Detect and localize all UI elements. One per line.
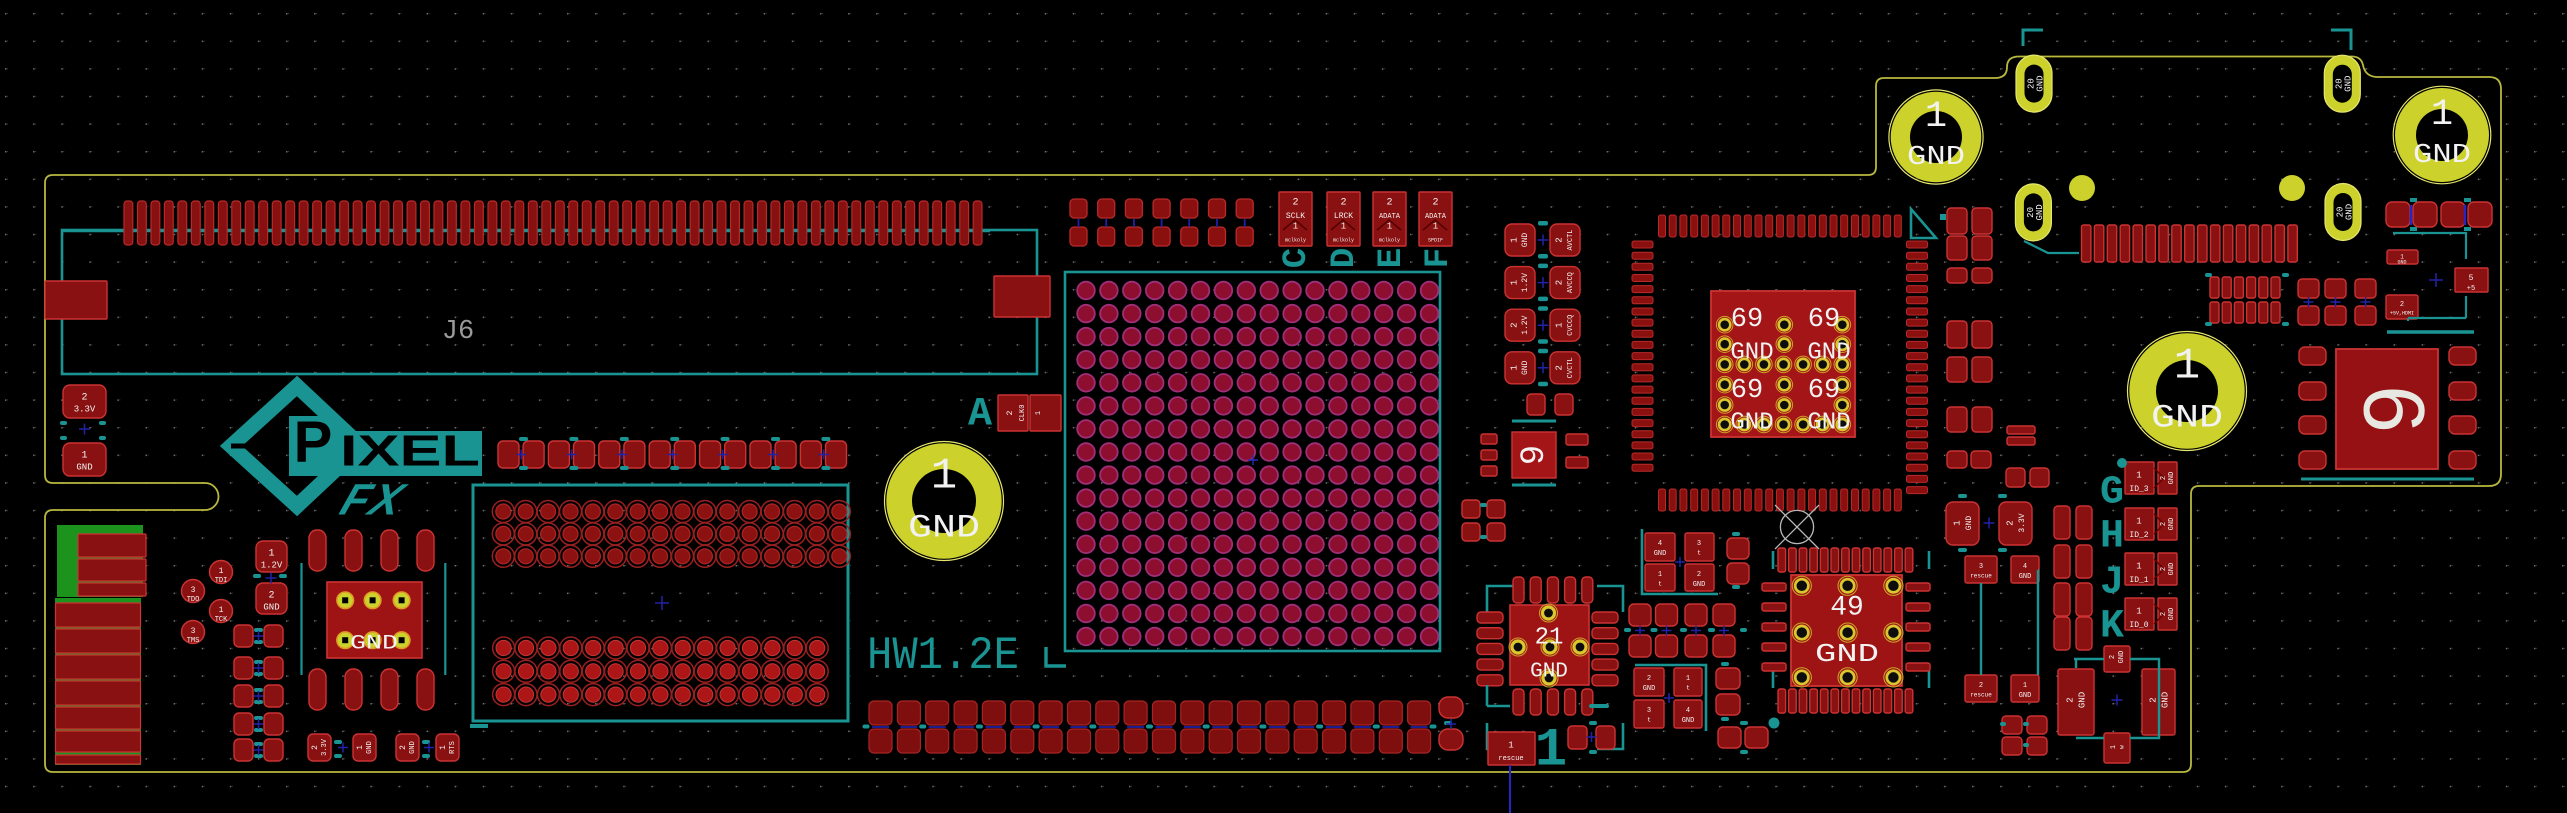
svg-text:1: 1 — [1554, 322, 1564, 327]
svg-text:GND: GND — [76, 462, 92, 472]
svg-text:2: 2 — [1697, 571, 1701, 579]
svg-text:GND: GND — [1643, 685, 1656, 693]
svg-text:J: J — [2100, 561, 2124, 606]
svg-text:1: 1 — [219, 606, 224, 615]
svg-text:6: 6 — [2345, 385, 2441, 433]
svg-text:GND: GND — [2019, 573, 2032, 581]
svg-text:2: 2 — [1292, 198, 1298, 209]
svg-text:GND: GND — [1521, 360, 1530, 375]
svg-text:GND: GND — [409, 741, 417, 754]
svg-text:TCK: TCK — [215, 616, 228, 624]
svg-text:1: 1 — [2136, 606, 2141, 616]
svg-text:GND: GND — [1907, 143, 1965, 173]
svg-text:RTS: RTS — [449, 741, 457, 754]
svg-text:GND: GND — [2035, 75, 2045, 91]
svg-text:1: 1 — [1658, 571, 1662, 579]
svg-text:ADATA: ADATA — [1379, 213, 1401, 221]
svg-text:2: 2 — [2160, 612, 2168, 616]
svg-text:GND: GND — [2168, 472, 2176, 485]
svg-text:E: E — [1373, 248, 1411, 268]
svg-text:IXEL: IXEL — [340, 427, 480, 476]
svg-text:2: 2 — [2160, 567, 2168, 571]
svg-text:2: 2 — [2160, 522, 2168, 526]
svg-text:TMS: TMS — [187, 637, 200, 645]
svg-text:A: A — [968, 393, 992, 438]
svg-text:GND: GND — [263, 602, 279, 612]
svg-text:1: 1 — [439, 745, 448, 750]
svg-text:TDO: TDO — [187, 596, 200, 604]
svg-text:w: w — [2119, 745, 2126, 749]
svg-text:69: 69 — [1731, 376, 1763, 406]
svg-text:ID_2: ID_2 — [2129, 531, 2148, 540]
svg-text:t: t — [1686, 685, 1690, 692]
svg-text:3: 3 — [1979, 563, 1983, 571]
svg-text:ID_0: ID_0 — [2129, 621, 2148, 630]
svg-text:mclkoly: mclkoly — [1333, 237, 1354, 243]
svg-text:GND: GND — [1682, 717, 1695, 725]
svg-text:2: 2 — [2400, 301, 2404, 309]
svg-text:D: D — [1326, 248, 1364, 268]
svg-text:GND: GND — [908, 509, 980, 546]
svg-text:F: F — [1420, 248, 1458, 268]
svg-text:1.2V: 1.2V — [1521, 273, 1530, 292]
svg-text:2: 2 — [2160, 476, 2168, 480]
svg-text:3: 3 — [1647, 707, 1651, 715]
svg-text:1: 1 — [1686, 675, 1690, 683]
svg-text:1: 1 — [1433, 221, 1438, 231]
svg-text:ADATA: ADATA — [1425, 213, 1447, 221]
svg-text:1: 1 — [1509, 280, 1519, 285]
svg-text:1.2V: 1.2V — [1521, 315, 1530, 334]
svg-text:1: 1 — [2174, 342, 2200, 392]
svg-text:GND: GND — [2035, 204, 2045, 220]
svg-text:mclkoly: mclkoly — [1379, 237, 1400, 243]
svg-text:49: 49 — [1830, 592, 1864, 623]
svg-text:t: t — [1658, 581, 1662, 588]
svg-text:t: t — [1647, 717, 1651, 724]
svg-text:1: 1 — [1535, 720, 1567, 781]
svg-text:GND: GND — [2077, 692, 2087, 708]
svg-text:1: 1 — [1341, 221, 1346, 231]
svg-text:G: G — [2100, 471, 2124, 516]
svg-text:1: 1 — [931, 452, 957, 502]
svg-text:1: 1 — [1035, 411, 1043, 415]
svg-text:GND: GND — [1730, 409, 1773, 436]
svg-text:GND: GND — [2168, 518, 2176, 531]
svg-text:1: 1 — [2431, 94, 2453, 136]
svg-text:GND: GND — [1807, 409, 1850, 436]
svg-text:GND: GND — [2344, 76, 2354, 92]
svg-text:4: 4 — [2023, 563, 2027, 571]
svg-text:2: 2 — [1386, 198, 1392, 209]
svg-text:2: 2 — [1554, 237, 1564, 242]
svg-text:GND: GND — [2344, 204, 2354, 220]
svg-text:GND: GND — [350, 632, 398, 655]
svg-text:9: 9 — [1516, 445, 1554, 465]
svg-text:3.3V: 3.3V — [74, 404, 96, 414]
svg-text:GND: GND — [2397, 259, 2406, 265]
svg-text:1: 1 — [1509, 237, 1519, 242]
svg-text:4: 4 — [1686, 707, 1690, 715]
svg-text:2: 2 — [311, 745, 320, 750]
svg-text:GND: GND — [2019, 692, 2032, 700]
svg-text:2: 2 — [2005, 520, 2015, 525]
svg-text:3.3V: 3.3V — [321, 738, 329, 756]
svg-text:GND: GND — [1815, 639, 1879, 669]
svg-text:CLK0: CLK0 — [1019, 405, 1027, 422]
svg-text:GND: GND — [1730, 339, 1773, 366]
svg-text:1: 1 — [356, 745, 365, 750]
svg-text:3: 3 — [1697, 540, 1701, 548]
svg-text:2: 2 — [1554, 365, 1564, 370]
svg-text:1: 1 — [219, 567, 224, 576]
svg-text:2: 2 — [399, 745, 408, 750]
svg-text:69: 69 — [1808, 376, 1840, 406]
svg-text:AVCTL: AVCTL — [1567, 229, 1575, 250]
svg-text:1: 1 — [1509, 365, 1519, 370]
svg-text:mclkoly: mclkoly — [1285, 237, 1306, 243]
svg-text:K: K — [2100, 605, 2124, 650]
svg-text:2: 2 — [2109, 655, 2117, 659]
svg-text:2: 2 — [81, 393, 87, 404]
svg-text:GND: GND — [1654, 550, 1667, 558]
svg-text:GND: GND — [1521, 233, 1530, 248]
svg-text:H: H — [2100, 515, 2124, 560]
svg-text:1: 1 — [2136, 561, 2141, 571]
svg-text:2: 2 — [1340, 198, 1346, 209]
svg-text:1: 1 — [2136, 470, 2141, 480]
svg-text:1: 1 — [2136, 516, 2141, 526]
svg-text:SCLK: SCLK — [1286, 212, 1305, 221]
svg-text:2: 2 — [1432, 198, 1438, 209]
svg-text:1: 1 — [81, 451, 87, 462]
svg-text:2: 2 — [1006, 410, 1015, 415]
svg-text:1: 1 — [1952, 520, 1962, 525]
svg-text:+5: +5 — [2467, 285, 2475, 293]
svg-text:2: 2 — [1647, 675, 1651, 683]
svg-text:TDI: TDI — [215, 577, 228, 585]
svg-text:GND: GND — [2151, 399, 2223, 436]
svg-text:1.2V: 1.2V — [261, 560, 283, 570]
svg-text:J6: J6 — [442, 317, 474, 347]
svg-text:GND: GND — [2168, 563, 2176, 576]
svg-text:GND: GND — [366, 741, 374, 754]
svg-text:1: 1 — [1293, 221, 1298, 231]
svg-text:2: 2 — [2148, 697, 2158, 702]
svg-text:ID_3: ID_3 — [2129, 485, 2148, 494]
svg-text:C: C — [1278, 248, 1316, 268]
svg-text:CVCCQ: CVCCQ — [1567, 315, 1575, 336]
svg-text:+5V,HDMI: +5V,HDMI — [2390, 310, 2414, 316]
svg-text:GND: GND — [2168, 608, 2176, 621]
svg-text:HW1.2E: HW1.2E — [867, 630, 1019, 682]
svg-text:rescue: rescue — [1970, 573, 1992, 580]
svg-text:rescue: rescue — [1498, 755, 1523, 763]
svg-text:3: 3 — [191, 627, 196, 636]
svg-text:2: 2 — [1509, 322, 1519, 327]
svg-text:1: 1 — [1508, 740, 1513, 750]
svg-text:2: 2 — [1979, 682, 1983, 690]
svg-text:69: 69 — [1808, 305, 1840, 335]
svg-text:GND: GND — [1693, 581, 1706, 589]
svg-text:2: 2 — [1554, 280, 1564, 285]
svg-text:t: t — [1697, 550, 1701, 557]
svg-text:3.3V: 3.3V — [2018, 513, 2027, 532]
svg-text:4: 4 — [1658, 540, 1662, 548]
svg-text:CVCTL: CVCTL — [1567, 357, 1575, 378]
svg-text:1: 1 — [2110, 745, 2118, 749]
svg-text:LRCK: LRCK — [1334, 212, 1353, 221]
svg-text:2: 2 — [268, 591, 274, 602]
svg-text:3: 3 — [191, 586, 196, 595]
svg-text:1: 1 — [1387, 221, 1392, 231]
svg-text:1: 1 — [268, 549, 274, 560]
svg-text:SPDIF: SPDIF — [1428, 237, 1443, 243]
svg-text:P: P — [294, 409, 333, 474]
svg-text:GND: GND — [1965, 516, 1974, 531]
svg-text:GND: GND — [1530, 661, 1568, 684]
svg-text:AVCCQ: AVCCQ — [1567, 272, 1575, 293]
svg-text:5: 5 — [2469, 274, 2474, 283]
svg-text:21: 21 — [1535, 624, 1564, 651]
svg-text:GND: GND — [1807, 339, 1850, 366]
svg-text:GND: GND — [2160, 692, 2170, 708]
svg-text:1: 1 — [2023, 682, 2027, 690]
svg-text:rescue: rescue — [1970, 692, 1992, 699]
svg-text:69: 69 — [1731, 305, 1763, 335]
svg-text:2: 2 — [2065, 697, 2075, 702]
svg-text:GND: GND — [2118, 651, 2126, 664]
svg-text:GND: GND — [2413, 141, 2471, 171]
svg-text:1: 1 — [1925, 96, 1947, 138]
svg-text:ID_1: ID_1 — [2129, 576, 2148, 585]
